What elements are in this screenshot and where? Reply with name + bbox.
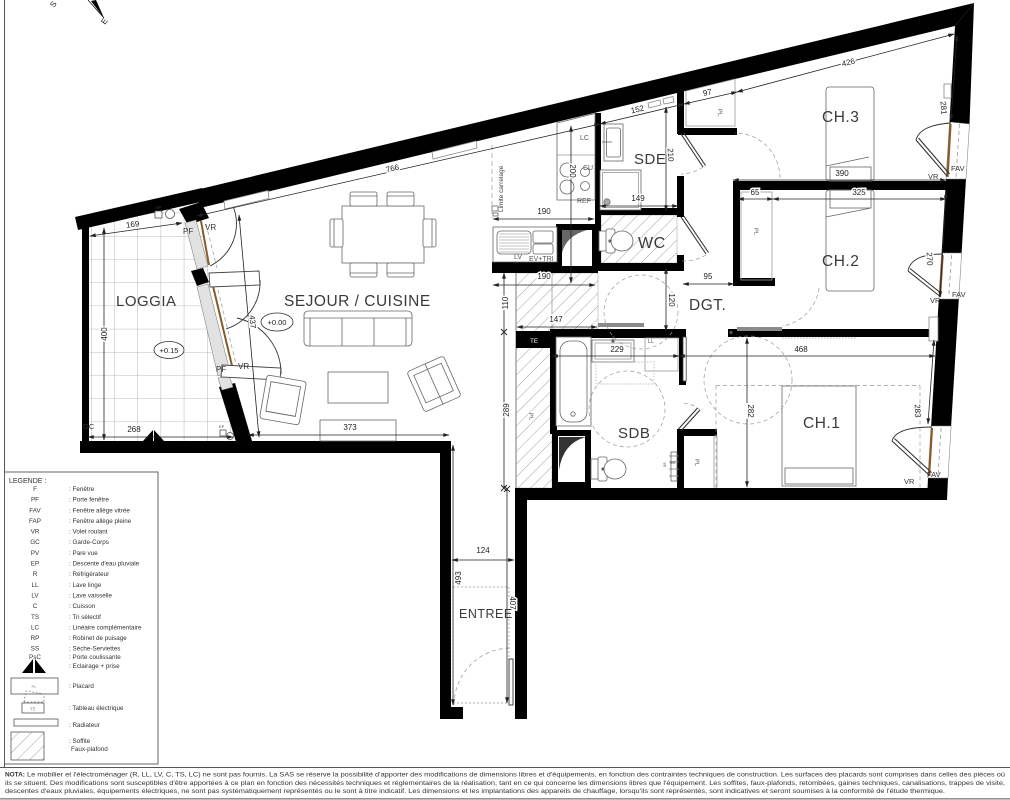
- svg-text:: Cuisson: : Cuisson: [69, 603, 96, 610]
- svg-text:R: R: [33, 571, 38, 578]
- svg-text:EP: EP: [31, 561, 39, 568]
- svg-text:VR: VR: [930, 296, 941, 305]
- svg-text:TE: TE: [530, 339, 538, 345]
- svg-text:PL: PL: [32, 684, 38, 689]
- svg-text:: Porte fenêtre: : Porte fenêtre: [69, 497, 109, 504]
- svg-text:65: 65: [751, 188, 760, 197]
- svg-text:: Lave vaisselle: : Lave vaisselle: [69, 593, 113, 600]
- svg-text:437: 437: [247, 315, 257, 330]
- svg-text:PF: PF: [216, 365, 226, 374]
- svg-text:Limite carrelage: Limite carrelage: [498, 165, 505, 212]
- svg-text:190: 190: [537, 272, 551, 281]
- svg-text:F: F: [33, 486, 37, 493]
- svg-text:: Volet roulant: : Volet roulant: [69, 529, 108, 536]
- svg-text:PL: PL: [693, 459, 700, 467]
- svg-text:+0.00: +0.00: [268, 318, 287, 327]
- svg-text:PL: PL: [752, 228, 759, 236]
- svg-text:: Porte coulissante: : Porte coulissante: [69, 654, 121, 661]
- svg-text:289: 289: [502, 403, 511, 417]
- svg-text:LOGGIA: LOGGIA: [116, 293, 177, 310]
- svg-text:: Garde-Corps: : Garde-Corps: [69, 539, 109, 546]
- svg-text:VR: VR: [205, 223, 216, 232]
- svg-text:ENTREE: ENTREE: [459, 607, 513, 621]
- svg-text:TS: TS: [31, 614, 39, 621]
- svg-text:270: 270: [925, 252, 935, 266]
- svg-text:LV: LV: [31, 593, 39, 600]
- svg-text:190: 190: [537, 207, 551, 216]
- svg-text:400: 400: [100, 327, 109, 341]
- svg-text:RP: RP: [31, 635, 40, 642]
- svg-text:descentes d'eaux pluviales, éq: descentes d'eaux pluviales, équipements …: [5, 788, 945, 795]
- svg-text:229: 229: [610, 345, 624, 354]
- svg-text:PV: PV: [31, 550, 40, 557]
- svg-text:390: 390: [835, 169, 849, 178]
- svg-text:FAV: FAV: [29, 507, 41, 514]
- svg-text:88: 88: [670, 460, 676, 465]
- svg-text:LL: LL: [648, 339, 654, 345]
- svg-text:: Fenêtre allège vitrée: : Fenêtre allège vitrée: [69, 507, 130, 514]
- svg-text:: Lave linge: : Lave linge: [69, 582, 102, 589]
- svg-text:VR: VR: [31, 529, 40, 536]
- svg-text:VR: VR: [238, 362, 249, 371]
- svg-text:: Réfrigérateur: : Réfrigérateur: [69, 571, 109, 578]
- svg-text:ss: ss: [662, 462, 667, 467]
- svg-text:: Sèche-Serviettes: : Sèche-Serviettes: [69, 646, 120, 653]
- svg-text:FAP: FAP: [29, 518, 41, 525]
- svg-text:PF: PF: [183, 227, 193, 236]
- svg-text:282: 282: [746, 404, 755, 418]
- svg-text:TE: TE: [30, 707, 36, 712]
- svg-text:+0.15: +0.15: [160, 346, 179, 355]
- svg-text:: Pare vue: : Pare vue: [69, 550, 98, 557]
- svg-text:VR: VR: [928, 172, 939, 181]
- svg-text:149: 149: [631, 194, 645, 203]
- svg-text:CU: CU: [583, 165, 593, 172]
- svg-text:PF: PF: [31, 497, 39, 504]
- svg-text:373: 373: [343, 423, 357, 432]
- svg-text:468: 468: [794, 345, 808, 354]
- svg-text:SEJOUR / CUISINE: SEJOUR / CUISINE: [284, 293, 431, 310]
- svg-text:: Placard: : Placard: [69, 683, 94, 690]
- svg-text:Faux-plafond: Faux-plafond: [71, 746, 108, 753]
- svg-text:GC: GC: [83, 422, 95, 431]
- svg-text:FAV: FAV: [952, 290, 966, 299]
- svg-text:CH.2: CH.2: [822, 253, 859, 270]
- svg-text:LC: LC: [580, 135, 589, 142]
- svg-text:95: 95: [704, 272, 713, 281]
- svg-text:110: 110: [501, 296, 510, 309]
- svg-text:DGT.: DGT.: [689, 297, 726, 314]
- svg-text:325: 325: [852, 188, 866, 197]
- svg-text:268: 268: [127, 425, 141, 434]
- svg-text:: Linéaire complémentaire: : Linéaire complémentaire: [69, 624, 142, 631]
- svg-text:210: 210: [666, 148, 676, 162]
- svg-text:120: 120: [667, 293, 676, 307]
- svg-text:200: 200: [568, 164, 577, 178]
- svg-text:EV+TRI: EV+TRI: [529, 256, 554, 263]
- svg-text:REF: REF: [577, 198, 591, 205]
- svg-text:EP: EP: [219, 424, 225, 429]
- svg-text:LV: LV: [514, 254, 522, 261]
- svg-text:: Tri sélectif: : Tri sélectif: [69, 614, 101, 621]
- svg-text:FAV: FAV: [951, 164, 965, 173]
- svg-text:: Fenêtre allège pleine: : Fenêtre allège pleine: [69, 518, 132, 525]
- svg-text:: Descente d'eau pluviale: : Descente d'eau pluviale: [69, 561, 140, 568]
- svg-text:C: C: [33, 603, 38, 610]
- svg-text:CH.1: CH.1: [803, 415, 840, 432]
- svg-text:: Fenêtre: : Fenêtre: [69, 486, 95, 493]
- svg-text:147: 147: [549, 315, 563, 324]
- svg-text:124: 124: [476, 546, 490, 555]
- svg-text:: Radiateur: : Radiateur: [69, 722, 100, 729]
- svg-text:SDE: SDE: [634, 151, 666, 168]
- svg-text:: Robinet de puisage: : Robinet de puisage: [69, 635, 127, 642]
- svg-text:PL: PL: [527, 413, 534, 421]
- svg-text:Le mobilier et l'électroménage: Le mobilier et l'électroménager (R, LL, …: [27, 772, 1005, 779]
- svg-text:169: 169: [125, 219, 140, 230]
- svg-text:CH.3: CH.3: [822, 109, 859, 126]
- svg-text:493: 493: [454, 571, 463, 585]
- svg-text:: Eclairage + prise: : Eclairage + prise: [69, 663, 120, 670]
- svg-text:: Soffite: : Soffite: [69, 738, 91, 745]
- svg-text:283: 283: [913, 404, 923, 418]
- svg-text:SS: SS: [31, 646, 39, 653]
- svg-text:LC: LC: [31, 624, 40, 631]
- svg-text:WC: WC: [638, 235, 666, 252]
- svg-text:FAV: FAV: [927, 470, 941, 479]
- svg-text:281: 281: [939, 101, 949, 115]
- svg-text:ils se situent. Des modificati: ils se situent. Des modifications sont s…: [5, 780, 1005, 787]
- svg-text:PL: PL: [716, 109, 723, 117]
- svg-text:LL: LL: [31, 582, 39, 589]
- svg-text:VR: VR: [904, 477, 915, 486]
- svg-text:: Tableau électrique: : Tableau électrique: [69, 705, 124, 712]
- svg-text:EP: EP: [156, 205, 162, 210]
- svg-text:SDB: SDB: [618, 425, 650, 442]
- svg-text:LEGENDE :: LEGENDE :: [9, 478, 46, 485]
- svg-text:NOTA:: NOTA:: [5, 772, 25, 779]
- svg-text:GC: GC: [30, 539, 40, 546]
